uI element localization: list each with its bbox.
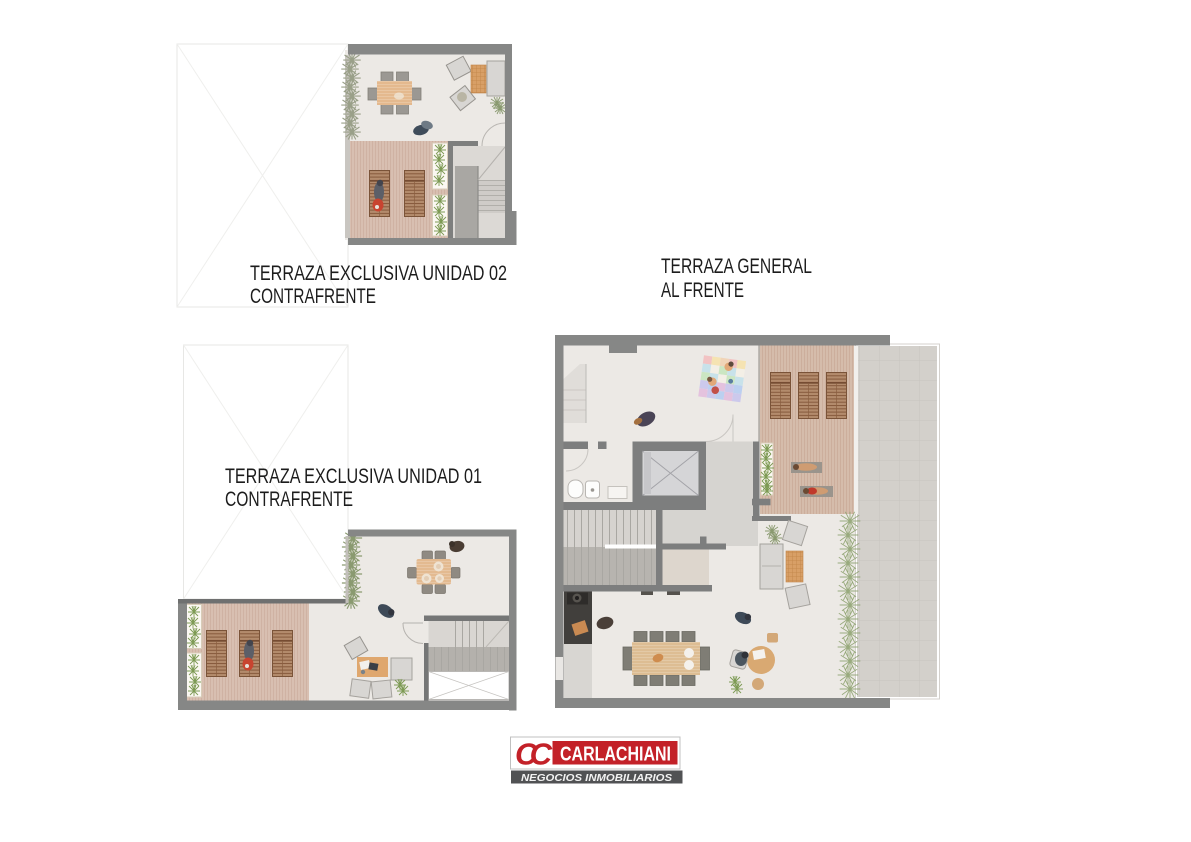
svg-text:CC: CC — [515, 737, 553, 772]
svg-text:CARLACHIANI: CARLACHIANI — [560, 744, 671, 766]
svg-text:NEGOCIOS INMOBILIARIOS: NEGOCIOS INMOBILIARIOS — [521, 772, 672, 784]
